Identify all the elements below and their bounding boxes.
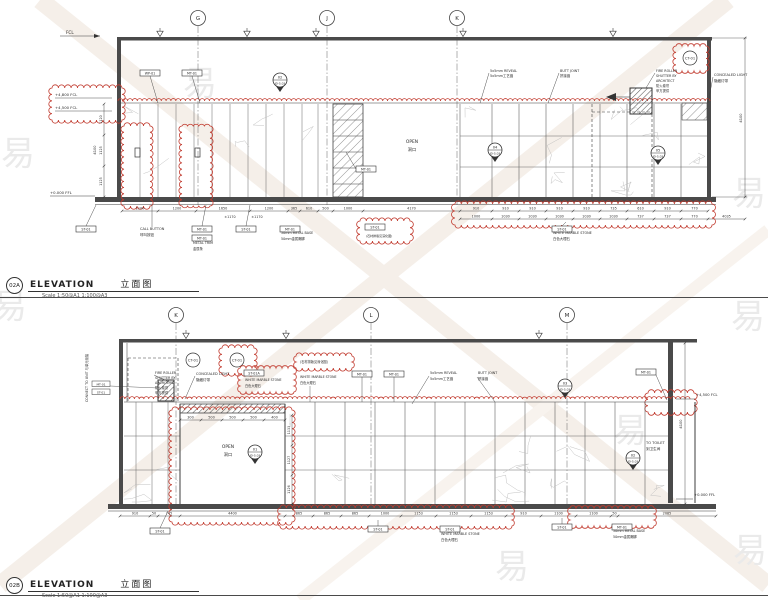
watermark-glyph: 易 [733, 531, 767, 571]
level-label: +0.000 FFL [694, 493, 716, 497]
revision-cloud-line [120, 397, 690, 399]
dimension-value: 1153 [414, 511, 423, 515]
keynote-sheet: ID-5.03 [560, 388, 571, 392]
wall-end-left [117, 37, 121, 197]
dimension-value: 865 [296, 511, 302, 515]
shutter-note: ARCHITECT [656, 79, 676, 83]
dimension-value: 50 [152, 511, 156, 515]
to-toilet-note-cn: 到卫生间 [646, 446, 661, 451]
level-label: +0.000 FFL [50, 190, 73, 195]
butt-joint-note: BUTT JOINT [478, 371, 498, 375]
marble-crack [498, 489, 530, 502]
reveal-note: 5x5mm REVEAL [490, 69, 517, 73]
title-main-a: ELEVATION 立面图 Scale 1:50@A1 1:100@A3 [28, 277, 199, 299]
section-flag [283, 333, 289, 338]
marble-note-cn: 白色大理石 [300, 380, 316, 385]
dimension-value: 1125 [99, 177, 103, 185]
dimension-value: 1200 [265, 206, 274, 210]
keynote-number: 02 [631, 454, 636, 458]
dimension-value: 1030 [609, 214, 618, 218]
watermark-glyph: 易 [731, 297, 765, 337]
dimension-value: 910 [473, 206, 479, 210]
marble-crack [611, 107, 622, 120]
material-tag-label: MT-01 [389, 373, 399, 377]
dimension-value: 400 [271, 415, 277, 419]
dimension-value: 910 [520, 511, 526, 515]
marble-crack [494, 475, 525, 501]
material-tag-label: MT-01 [641, 371, 651, 375]
metal-base-note-cn: 50mm金属踢脚 [281, 236, 306, 241]
marble-crack [551, 172, 565, 183]
material-tag-label: ST-01 [155, 530, 164, 534]
dimension-value: 865 [324, 511, 330, 515]
marble-crack [550, 479, 566, 489]
shutter-note: FIRE ROLLER [155, 371, 177, 375]
material-tag-label: MT-01 [197, 237, 207, 241]
grid-label: K [455, 16, 459, 22]
dimension-value: 1133 [287, 426, 291, 434]
metal-base-note: 50mm METAL BASE [613, 529, 645, 533]
dimension-value: 1100 [136, 206, 145, 210]
marble-crack [689, 153, 705, 164]
open-label: OPEN [222, 444, 234, 450]
dimension-value: 1100 [589, 511, 598, 515]
revision-cloud [49, 85, 125, 123]
marble-crack [621, 182, 632, 192]
keynote-number: 05 [656, 149, 661, 153]
dimension-value: 910 [583, 206, 589, 210]
section-flag [157, 31, 163, 36]
dimension-value: 1153 [484, 511, 493, 515]
reveal-note: 5x5mm REVEAL [430, 371, 457, 375]
concealed-light-note: CONCEALED LIGHT [714, 73, 748, 77]
title-text-cn-a: 立面图 [120, 277, 153, 290]
louvre-grille [333, 104, 363, 197]
dimension-value: 1200 [173, 206, 182, 210]
marble-note: WHITE MARBLE STONE [245, 378, 281, 382]
dimension-value: 1030 [528, 214, 537, 218]
concealed-light-cove [682, 103, 707, 120]
dimension-value: 1126 [287, 485, 291, 493]
keynote-number: 01 [253, 448, 258, 452]
keynote-number: 02 [278, 76, 283, 80]
dimension-value: 4170 [407, 206, 416, 210]
dimension-value: 500 [250, 415, 256, 419]
dimension-value: 910 [132, 511, 138, 515]
title-text-b: ELEVATION [30, 580, 94, 590]
title-block-b: 02B ELEVATION 立面图 Scale 1:50@A1 1:100@A3 [6, 577, 199, 599]
dimension-value: 2085 [663, 511, 672, 515]
marble-note: WHITE MARBLE STONE [553, 231, 592, 235]
level-label: +4,500 FCL [696, 393, 719, 397]
connect-note: CONNECT TO UNIT 与单元衔接 [84, 353, 89, 402]
dimension-value: ±1170 [224, 215, 235, 219]
reveal-note-cn: 5x5mm工艺缝 [430, 376, 454, 381]
shutter-note: SHUTTER BY [656, 74, 677, 78]
concealed-light-note: CONCEALED LIGHT [196, 372, 230, 376]
marble-crack [143, 158, 168, 173]
keynote-number: 03 [563, 382, 568, 386]
open-label: OPEN [406, 139, 418, 145]
to-toilet-note: TO TOILET [645, 441, 666, 445]
title-row-b: ELEVATION 立面图 [28, 577, 199, 592]
marble-crack [124, 494, 152, 502]
watermark-glyph: 易 [613, 411, 647, 451]
leader-line [202, 205, 206, 226]
ceiling-slab [118, 37, 712, 41]
marble-crack [302, 126, 314, 141]
concealed-light-note-cn: 隐藏灯带 [714, 78, 728, 83]
revision-cloud [121, 123, 153, 209]
section-flag [313, 31, 319, 36]
dimension-value: 910 [664, 206, 670, 210]
title-scale-a: Scale 1:50@A1 1:100@A3 [28, 292, 199, 299]
leader-line [185, 376, 195, 399]
material-tag-label: MT-01 [187, 72, 197, 76]
metal-trim-note-cn: 金属条 [193, 246, 204, 251]
call-button-note: CALL BUTTON [140, 227, 165, 231]
title-main-b: ELEVATION 立面图 Scale 1:50@A1 1:100@A3 [28, 577, 199, 599]
title-text-a: ELEVATION [30, 280, 94, 290]
level-label: +4,800 FCL [55, 92, 78, 97]
elevation-canvas: 易易易易易易易易GJKOPEN洞口MT-01FCL+4,800 FCL+4,50… [0, 0, 768, 600]
title-block-a: 02A ELEVATION 立面图 Scale 1:50@A1 1:100@A3 [6, 277, 199, 299]
marble-note-cn: 白色大理石 [441, 537, 459, 542]
dimension-total: 4100 [679, 419, 683, 429]
stone-layout-note: (石材排版见深化图) [366, 233, 392, 238]
dimension-value: 1000 [344, 206, 353, 210]
dimension-value: 910 [529, 206, 535, 210]
dimension-total: 4100 [93, 145, 97, 155]
section-flag [183, 333, 189, 338]
dimension-value: 365 [291, 206, 297, 210]
material-tag-label: ST-01 [97, 390, 105, 394]
marble-crack [492, 492, 521, 502]
fixture-tag-label: CT-01 [685, 56, 695, 60]
material-tag-label: ST-01 [373, 528, 382, 532]
wall-end-right [668, 339, 673, 503]
material-tag-label: MT-01 [361, 168, 371, 172]
dimension-value: 1153 [449, 511, 458, 515]
metal-base-note-cn: 50mm金属踢脚 [613, 534, 638, 539]
dimension-value: 4400 [228, 511, 237, 515]
level-label: FCL [66, 30, 74, 35]
title-text-cn-b: 立面图 [120, 577, 153, 590]
marble-crack [124, 106, 138, 114]
marble-note-cn: 白色大理石 [245, 383, 261, 388]
call-button [135, 148, 140, 157]
marble-crack [465, 107, 476, 118]
fixture-tag-label: CT-01 [188, 358, 198, 362]
section-flag [610, 31, 616, 36]
detail-number-b: 02B [6, 577, 23, 594]
material-tag-label: ST-01 [81, 228, 90, 232]
dimension-value: 500 [229, 415, 235, 419]
dimension-value: 1000 [472, 214, 481, 218]
dimension-value: 1127 [287, 456, 291, 464]
dimension-value: 737 [637, 214, 643, 218]
dimension-value: 1000 [381, 511, 390, 515]
marble-crack [235, 141, 249, 147]
dimension-value: 735 [610, 206, 616, 210]
shutter-note: SHUTTER BY [155, 376, 176, 380]
open-label-cn: 洞口 [224, 451, 232, 457]
leader-line [656, 375, 667, 400]
grid-label: K [174, 313, 178, 319]
dimension-value: 610 [637, 206, 643, 210]
metal-trim-note: METAL TRIM [193, 241, 213, 245]
grid-label: J [325, 16, 328, 22]
ceiling-slab [120, 339, 697, 343]
stone-layout-note: (石材排版见深化图) [300, 359, 328, 364]
marble-crack [156, 467, 178, 481]
drawing-sheet: 易易易易易易易易GJKOPEN洞口MT-01FCL+4,800 FCL+4,50… [0, 0, 768, 600]
grid-label: G [196, 16, 200, 22]
call-button-note-cn: 呼叫按钮 [140, 232, 154, 237]
butt-joint-note: BUTT JOINT [560, 69, 580, 73]
concealed-light-note-cn: 隐藏灯带 [196, 377, 210, 382]
material-tag-label: MT-01 [357, 373, 367, 377]
material-tag-label: ST-01 [557, 526, 566, 530]
dimension-value: 1125 [99, 146, 103, 154]
material-tag-label: ST-01 [241, 228, 250, 232]
keynote-sheet: ID-5.03 [490, 152, 501, 156]
grid-label: M [565, 313, 570, 319]
material-tag-label: ST-01 [370, 226, 379, 230]
lintel-hatch [180, 404, 285, 413]
dimension-value: 770 [691, 206, 697, 210]
shutter-note: 防火卷帘 [656, 83, 670, 88]
marble-note-cn: 白色大理石 [553, 236, 571, 241]
material-tag-label: MT-01 [197, 228, 207, 232]
fixture-tag-label: CT-01 [232, 358, 242, 362]
dimension-value: 500 [322, 206, 328, 210]
marble-note: WHITE MARBLE STONE [300, 375, 336, 379]
dimension-value: ±1170 [251, 215, 262, 219]
material-tag-label: MT-01 [96, 382, 105, 386]
detail-number-a: 02A [6, 277, 23, 294]
section-flag [460, 31, 466, 36]
material-tag-label: ST-01 [445, 528, 454, 532]
dimension-value: 300 [187, 415, 193, 419]
marble-crack [503, 464, 530, 473]
revision-cloud [357, 218, 414, 244]
leader-line [562, 222, 566, 226]
keynote-sheet: ID-5.03 [628, 460, 639, 464]
title-row-a: ELEVATION 立面图 [28, 277, 199, 292]
shutter-note: 防火卷帘 [155, 385, 169, 390]
marble-crack [332, 474, 349, 481]
dimension-value: 1030 [555, 214, 564, 218]
dimension-value: 1030 [501, 214, 510, 218]
dimension-value: 500 [208, 415, 214, 419]
title-scale-b: Scale 1:50@A1 1:100@A3 [28, 592, 199, 599]
metal-base-note: 50mm METAL BASE [281, 231, 313, 235]
dimension-value: 50 [612, 511, 616, 515]
keynote-number: 04 [493, 146, 498, 150]
fire-shutter-box [630, 88, 652, 114]
leader-line [246, 205, 250, 226]
butt-joint-note-cn: 拼接缝 [560, 73, 571, 78]
reveal-note-cn: 5x5mm工艺缝 [490, 73, 514, 78]
marble-note: WHITE MARBLE STONE [441, 532, 480, 536]
dimension-value: 4035 [722, 214, 731, 218]
section-flag [536, 333, 542, 338]
material-tag-label: ST-01A [248, 372, 260, 376]
open-label-cn: 洞口 [408, 146, 416, 152]
wall-end-left [119, 339, 123, 504]
watermark-glyph: 易 [732, 174, 766, 214]
section-flag [244, 31, 250, 36]
watermark-glyph: 易 [1, 134, 35, 174]
keynote-sheet: ID-5.03 [653, 155, 664, 159]
dimension-value: 1650 [219, 206, 228, 210]
keynote-sheet: ID-5.03 [275, 82, 286, 86]
dimension-value: 910 [502, 206, 508, 210]
watermark-glyph: 易 [495, 547, 529, 587]
dimension-value: 770 [691, 214, 697, 218]
dimension-value: 610 [306, 206, 312, 210]
leader-line [86, 205, 96, 226]
leader-line [412, 376, 429, 404]
dimension-value: 1120 [99, 115, 103, 123]
keynote-sheet: ID-5.03 [250, 454, 261, 458]
dimension-total: 4100 [739, 113, 743, 123]
shutter-note: 甲方提供 [155, 390, 169, 395]
call-button [195, 148, 200, 157]
shutter-note: FIRE ROLLER [656, 69, 678, 73]
shutter-note: 甲方提供 [656, 88, 670, 93]
marble-crack [253, 114, 273, 126]
level-label: +4,500 FCL [55, 105, 78, 110]
leader-line [110, 386, 158, 388]
dimension-value: 865 [352, 511, 358, 515]
dimension-value: 737 [664, 214, 670, 218]
material-tag-label: WP-01 [145, 72, 156, 76]
leader-line [160, 511, 168, 528]
dimension-value: 1030 [582, 214, 591, 218]
dimension-value: 1100 [554, 511, 563, 515]
dimension-value: 910 [556, 206, 562, 210]
